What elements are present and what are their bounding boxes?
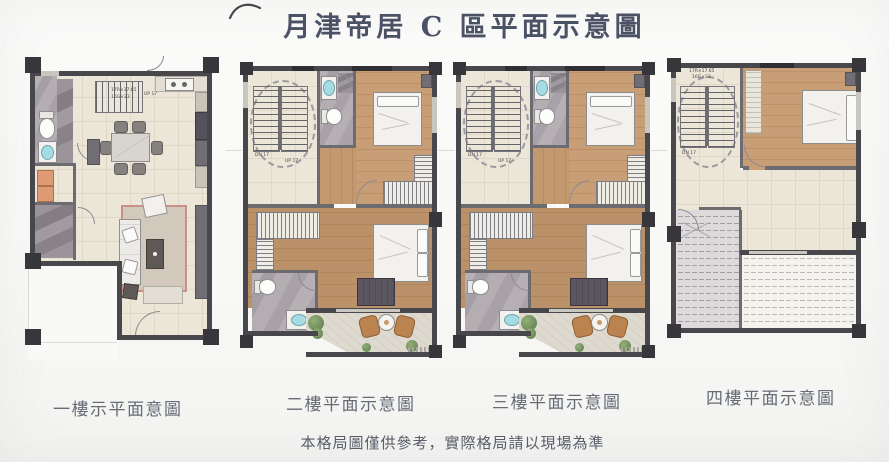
- partition-wall: [35, 163, 76, 166]
- front-door-arc: [147, 56, 164, 71]
- wall: [207, 71, 212, 340]
- floor-label-1: 一樓示平面意圖: [53, 395, 183, 420]
- wall: [30, 71, 35, 266]
- table-center: [384, 320, 389, 325]
- dining-table-icon: [111, 133, 150, 162]
- staircase-treads: [494, 86, 521, 152]
- side-table-icon: [122, 283, 139, 300]
- sliding-door: [336, 309, 400, 312]
- toilet-icon: [39, 118, 55, 139]
- sink-icon: [323, 80, 335, 96]
- coffee-table-icon: [146, 239, 164, 269]
- window: [456, 82, 461, 108]
- dimension-line: [438, 150, 455, 151]
- staircase-treads: [680, 86, 707, 148]
- duvet-fold: [592, 113, 621, 123]
- window-lintel: [760, 63, 794, 68]
- throw-pillow: [121, 226, 139, 244]
- tv-dresser-icon: [357, 278, 395, 306]
- sliding-door: [749, 251, 807, 254]
- duvet-fold: [807, 119, 837, 126]
- sink-icon: [41, 145, 54, 160]
- duvet-fold: [593, 235, 624, 250]
- nightstand-icon: [845, 72, 856, 86]
- staircase-treads: [281, 86, 308, 152]
- toilet-icon: [539, 108, 555, 125]
- dimension-line: [651, 150, 667, 151]
- column: [429, 62, 442, 75]
- stair-divider: [705, 86, 708, 146]
- wall: [671, 63, 676, 330]
- burner-dot: [171, 82, 176, 87]
- column: [25, 57, 41, 73]
- window-lintel: [505, 66, 527, 71]
- column: [642, 212, 655, 227]
- column: [667, 226, 681, 242]
- pillow: [630, 253, 641, 277]
- floor-plan-3: DN 17 UP 17: [453, 52, 653, 370]
- floor-label-2: 二樓平面示意圖: [286, 390, 416, 415]
- duvet-fold: [591, 252, 620, 260]
- wall: [243, 66, 437, 71]
- wall: [117, 335, 212, 340]
- wall: [243, 331, 318, 336]
- column: [240, 62, 253, 75]
- column: [429, 212, 442, 227]
- wall: [456, 66, 650, 71]
- floor-plan-sheet: 月津帝居 C 區平面示意圖 17R×17.65 16G×23 UP 17: [0, 0, 889, 462]
- bed-icon: [586, 92, 635, 146]
- table-center: [597, 320, 602, 325]
- stair-divider: [491, 86, 494, 150]
- balcony-parapet: [519, 352, 650, 357]
- sideboard-icon: [87, 139, 100, 165]
- window-lintel: [292, 66, 314, 71]
- window: [645, 97, 650, 133]
- balcony-parapet: [306, 352, 437, 357]
- column: [852, 222, 866, 238]
- hallway-floor: [320, 148, 356, 204]
- wardrobe-icon: [383, 181, 434, 206]
- column: [852, 324, 866, 338]
- staircase-treads: [466, 86, 493, 152]
- column: [453, 335, 466, 348]
- toilet-icon: [472, 279, 489, 295]
- page-title: 月津帝居 C 區平面示意圖: [0, 5, 889, 44]
- wall: [117, 261, 122, 340]
- hallway-floor: [533, 148, 569, 204]
- pillow: [590, 96, 632, 107]
- site-boundary-line: [41, 342, 117, 343]
- stair-dimension-label: 16G×23: [111, 96, 130, 101]
- sink-icon: [291, 314, 307, 326]
- bench-icon: [143, 286, 183, 304]
- bathroom-wall-strip: [57, 79, 73, 163]
- exterior-notch: [28, 261, 118, 360]
- dining-chair-icon: [151, 141, 163, 155]
- wardrobe-icon: [469, 212, 533, 239]
- sink-icon: [536, 80, 548, 96]
- table-knob: [153, 252, 157, 256]
- partition-wall: [765, 166, 856, 170]
- duvet-fold: [379, 113, 408, 123]
- duvet-fold: [380, 235, 411, 250]
- column: [642, 345, 655, 358]
- partition-wall: [743, 166, 749, 170]
- duvet-fold: [382, 123, 410, 130]
- window-lintel: [565, 66, 605, 71]
- plant-icon: [575, 343, 584, 352]
- window: [41, 71, 59, 76]
- column: [240, 335, 253, 348]
- dining-chair-icon: [132, 163, 146, 175]
- wardrobe-icon: [627, 155, 647, 183]
- column: [667, 324, 681, 338]
- floor-plan-4: 17R×17.65 16G×23 DN 17: [665, 50, 865, 348]
- stair-divider: [278, 86, 281, 150]
- stair-down-label: DN 17: [682, 152, 696, 157]
- window: [671, 78, 676, 102]
- patio-table-icon: [591, 314, 608, 331]
- plant-icon: [362, 343, 371, 352]
- wardrobe-icon: [256, 212, 320, 239]
- closet-icon: [745, 70, 762, 134]
- window: [432, 97, 437, 133]
- floor-plan-2: DN 17 UP 17: [240, 52, 440, 370]
- column: [642, 62, 655, 75]
- staircase-treads: [708, 86, 735, 148]
- pillow: [417, 229, 428, 253]
- column: [203, 57, 219, 73]
- dining-chair-icon: [114, 121, 128, 133]
- table-highlight: [115, 134, 151, 158]
- stair-dimension-label: 17R×17.65: [689, 70, 715, 75]
- duvet-fold: [378, 252, 407, 260]
- tv-dresser-icon: [570, 278, 608, 306]
- toilet-icon: [259, 279, 276, 295]
- stair-dimension-label: 16G×23: [692, 76, 711, 81]
- wardrobe-icon: [414, 155, 434, 183]
- stair-up-label: UP 17: [285, 160, 298, 165]
- nightstand-icon: [634, 74, 645, 88]
- patio-table-icon: [378, 314, 395, 331]
- dining-chair-icon: [132, 121, 146, 133]
- stair-up-label: UP 17: [144, 93, 157, 98]
- partition-wall: [699, 207, 741, 210]
- stove-icon: [165, 78, 194, 91]
- pillow: [417, 253, 428, 277]
- floor-label-3: 三樓平面示意圖: [492, 388, 622, 413]
- wall: [456, 331, 531, 336]
- window: [856, 92, 861, 130]
- bed-icon: [802, 90, 858, 144]
- disclaimer-text: 本格局圖僅供參考，實際格局請以現場為準: [0, 432, 889, 453]
- stair-down-label: DN 17: [468, 154, 482, 159]
- cabinet-icon: [37, 186, 54, 202]
- bed-icon: [373, 224, 429, 282]
- sliding-door: [549, 309, 613, 312]
- column: [203, 329, 219, 345]
- floor-plan-1: 17R×17.65 16G×23 UP 17: [15, 55, 230, 360]
- duvet-fold: [595, 123, 623, 130]
- dimension-line: [226, 150, 242, 151]
- column: [852, 58, 866, 72]
- throw-pillow: [122, 259, 139, 276]
- utility-room-floor: [35, 205, 75, 258]
- partition-wall: [73, 163, 76, 260]
- column: [429, 345, 442, 358]
- stair-up-label: UP 17: [498, 160, 511, 165]
- wall: [671, 328, 861, 333]
- column: [25, 253, 41, 269]
- pillow: [630, 229, 641, 253]
- duvet-fold: [809, 103, 841, 116]
- sofa-icon: [119, 219, 141, 285]
- stair-down-label: DN 17: [255, 154, 269, 159]
- window-lintel: [352, 66, 392, 71]
- cabinet-icon: [37, 170, 54, 186]
- stair-dimension-label: 17R×17.65: [111, 89, 137, 94]
- toilet-icon: [326, 108, 342, 125]
- wardrobe-icon: [596, 181, 647, 206]
- staircase-treads: [253, 86, 280, 152]
- dining-chair-icon: [114, 163, 128, 175]
- window: [243, 82, 248, 108]
- wall: [30, 261, 122, 266]
- floor-label-4: 四樓平面示意圖: [706, 384, 836, 409]
- roof-terrace-floor: [742, 255, 856, 328]
- site-boundary-line: [28, 269, 29, 331]
- sink-icon: [504, 314, 520, 326]
- pillow: [377, 96, 419, 107]
- column: [667, 58, 681, 72]
- nightstand-icon: [421, 74, 432, 88]
- column: [453, 62, 466, 75]
- column: [25, 329, 41, 345]
- bed-icon: [586, 224, 642, 282]
- bed-icon: [373, 92, 422, 146]
- burner-dot: [182, 82, 187, 87]
